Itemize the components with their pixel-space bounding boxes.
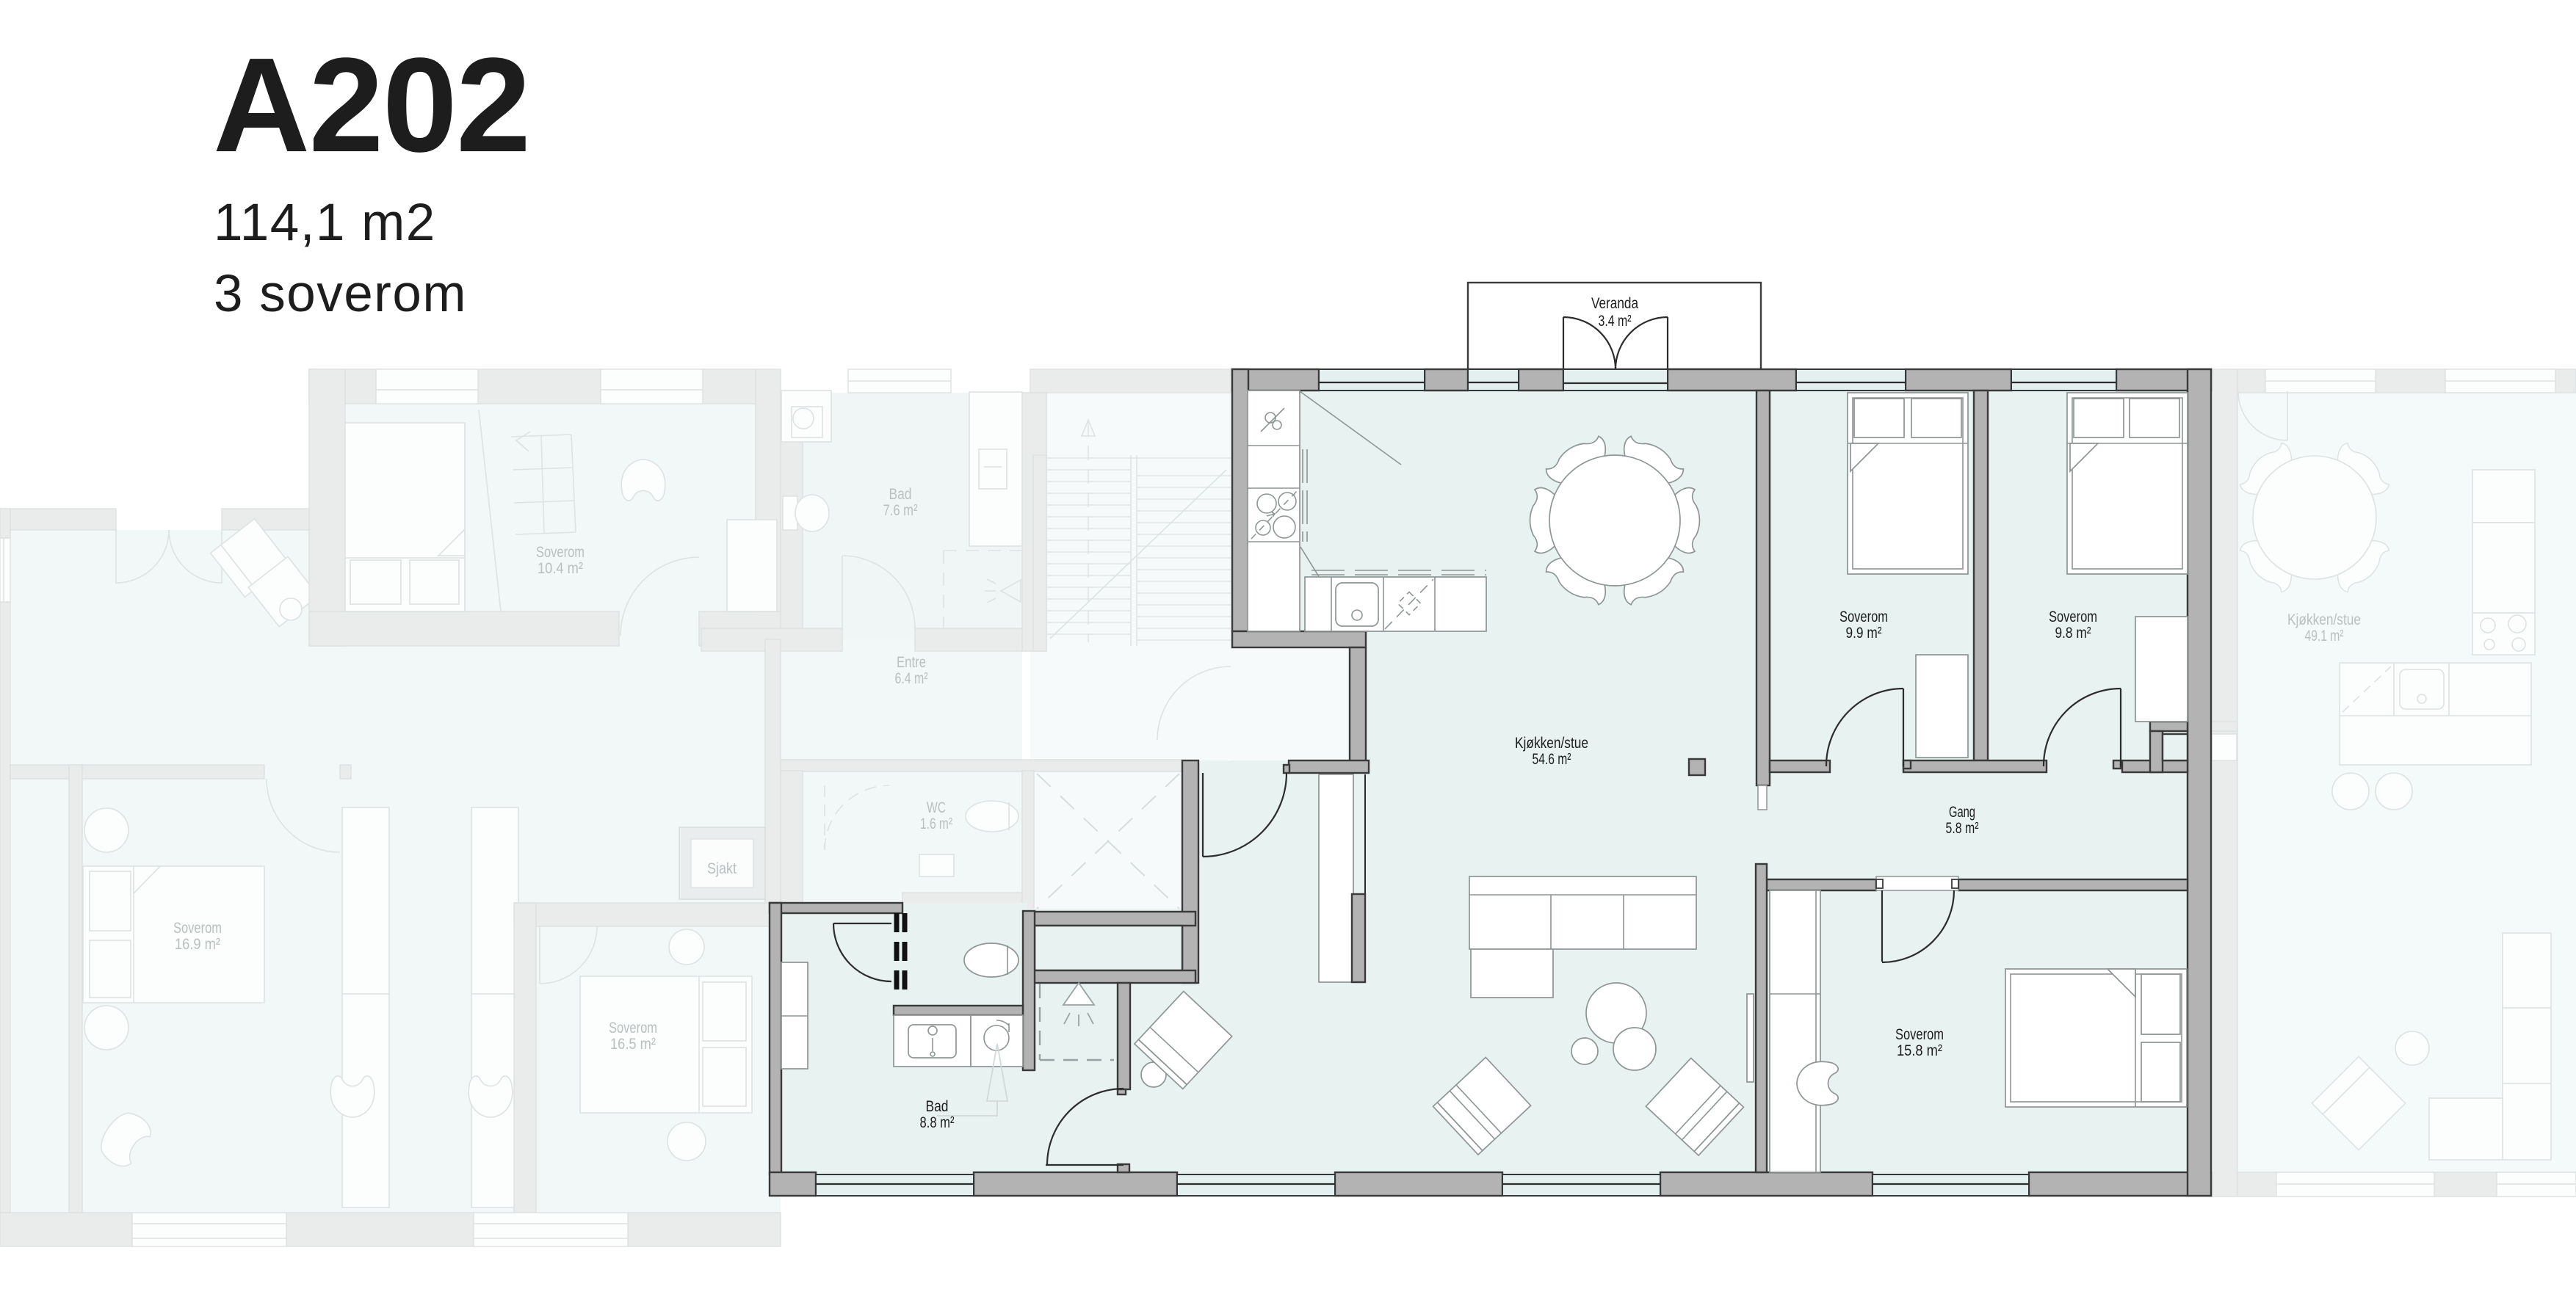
svg-text:Soverom: Soverom (1895, 1025, 1944, 1043)
svg-text:9.9 m²: 9.9 m² (1846, 624, 1882, 642)
svg-text:3 soverom: 3 soverom (214, 265, 467, 323)
svg-text:Soverom: Soverom (536, 543, 585, 561)
svg-text:10.4 m²: 10.4 m² (538, 559, 583, 577)
svg-text:49.1 m²: 49.1 m² (2305, 627, 2344, 644)
svg-text:8.8 m²: 8.8 m² (920, 1114, 955, 1131)
svg-text:Bad: Bad (889, 485, 912, 503)
svg-text:Kjøkken/stue: Kjøkken/stue (2287, 611, 2361, 628)
svg-text:Soverom: Soverom (609, 1019, 657, 1036)
svg-text:Soverom: Soverom (2049, 608, 2097, 625)
svg-text:Entre: Entre (897, 653, 926, 671)
svg-text:A202: A202 (213, 29, 529, 180)
svg-text:7.6 m²: 7.6 m² (883, 501, 918, 519)
svg-text:Gang: Gang (1949, 803, 1975, 821)
svg-text:16.9 m²: 16.9 m² (175, 935, 220, 953)
svg-text:Veranda: Veranda (1591, 294, 1638, 312)
svg-text:54.6 m²: 54.6 m² (1533, 750, 1571, 768)
svg-text:15.8 m²: 15.8 m² (1897, 1042, 1942, 1059)
svg-text:Sjakt: Sjakt (707, 860, 737, 877)
svg-text:Kjøkken/stue: Kjøkken/stue (1515, 734, 1588, 752)
svg-text:Bad: Bad (926, 1097, 949, 1115)
svg-text:16.5 m²: 16.5 m² (610, 1035, 656, 1053)
svg-text:9.8 m²: 9.8 m² (2055, 624, 2091, 642)
svg-text:6.4 m²: 6.4 m² (895, 669, 928, 687)
svg-text:Soverom: Soverom (173, 919, 222, 937)
svg-text:WC: WC (927, 799, 946, 816)
svg-text:5.8 m²: 5.8 m² (1946, 819, 1979, 837)
svg-text:Soverom: Soverom (1839, 608, 1888, 625)
svg-text:3.4 m²: 3.4 m² (1599, 312, 1632, 330)
svg-text:1.6 m²: 1.6 m² (920, 815, 952, 832)
svg-text:114,1 m2: 114,1 m2 (214, 194, 436, 252)
